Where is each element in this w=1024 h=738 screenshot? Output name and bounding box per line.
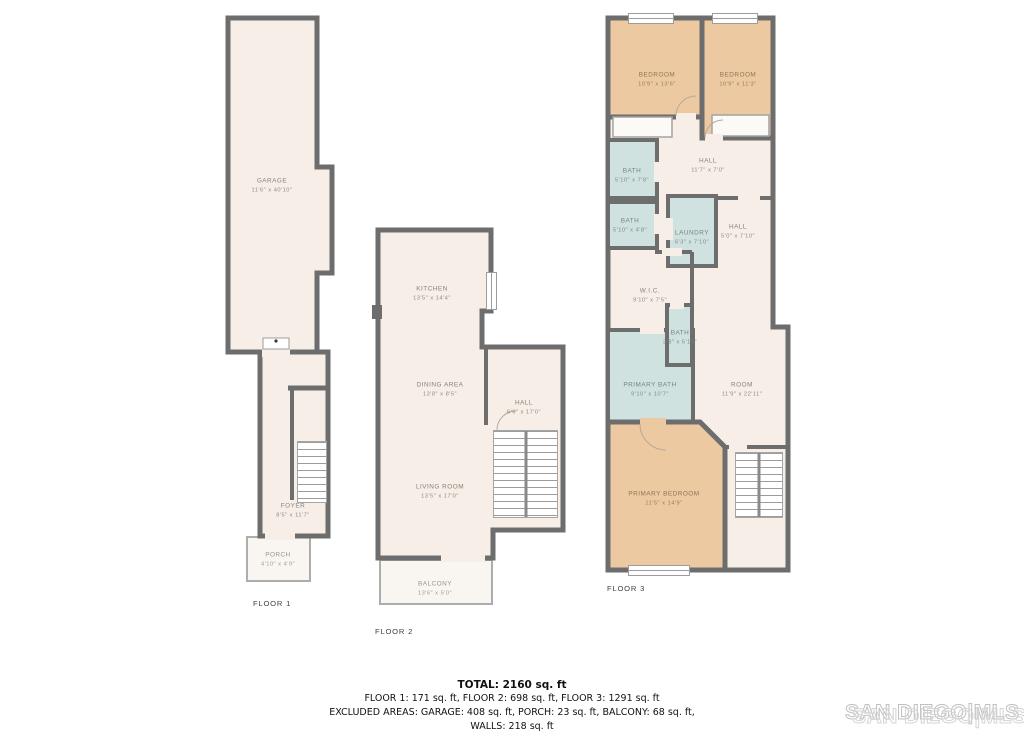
room-label-primary-bath: PRIMARY BATH 9'10" x 10'7" [623,382,676,399]
room-name: BEDROOM [719,72,756,80]
room-name: ROOM [722,382,763,390]
room-name: HALL [507,400,541,408]
room-name: PRIMARY BATH [623,382,676,390]
room-dims: 13'5" x 17'0" [416,493,464,500]
stairs-floor3 [735,452,783,518]
room-label-dining-area: DINING AREA 13'8" x 8'5" [417,382,464,399]
room-dims: 11'5" x 14'9" [628,500,699,507]
room-name: BATH [613,218,647,226]
room-dims: 11'7" x 7'0" [691,167,725,174]
room-label-hall-upper: HALL 11'7" x 7'0" [691,158,725,175]
room-label-balcony: BALCONY 13'6" x 5'0" [418,581,452,598]
floor2-plan [372,230,563,604]
door-gap [640,418,666,427]
window-icon [628,13,674,24]
door-gap [640,326,664,334]
room-dims: 13'5" x 14'4" [413,295,451,302]
stair-rail [524,431,527,517]
room-dims: 9'10" x 7'5" [633,297,667,304]
room-name: PORCH [261,552,295,560]
room-label-primary-bedroom: PRIMARY BEDROOM 11'5" x 14'9" [628,491,699,508]
room-label-hall-right: HALL 5'0" x 7'10" [721,224,755,241]
room-label-porch: PORCH 4'10" x 4'9" [261,552,295,569]
floor3-caption: FLOOR 3 [607,584,645,593]
door-dot-icon [274,339,277,342]
room-label-hall-f2: HALL 6'6" x 17'0" [507,400,541,417]
stair-rail [758,453,761,517]
room-label-bedroom-right: BEDROOM 10'9" x 11'3" [719,72,756,89]
room-label-bath-top: BATH 5'10" x 7'8" [615,168,649,185]
room-name: BATH [615,168,649,176]
room-dims: 11'9" x 22'11" [722,391,763,398]
bedroom-left-shape [608,18,702,117]
room-label-garage: GARAGE 11'6" x 40'10" [252,178,293,195]
closet-left [613,117,672,137]
door-gap [654,162,662,182]
room-dims: 13'8" x 8'5" [417,391,464,398]
room-dims: 13'6" x 5'0" [418,590,452,597]
room-name: BATH [663,330,697,338]
room-label-living-room: LIVING ROOM 13'5" x 17'0" [416,484,464,501]
room-dims: 6'6" x 17'0" [507,409,541,416]
room-dims: 8'5" x 11'7" [276,512,310,519]
window-icon [486,272,497,310]
room-label-kitchen: KITCHEN 13'5" x 14'4" [413,286,451,303]
floor2-caption: FLOOR 2 [375,627,413,636]
room-label-foyer: FOYER 8'5" x 11'7" [276,503,310,520]
room-dims: 3'8" x 5'10" [663,339,697,346]
room-name: LIVING ROOM [416,484,464,492]
room-dims: 10'9" x 11'3" [719,81,756,88]
room-name: W.I.C. [633,288,667,296]
floor1-caption: FLOOR 1 [253,599,291,608]
balcony-door-gap [441,553,485,562]
door-gap [738,194,760,202]
room-name: GARAGE [252,178,293,186]
room-dims: 4'10" x 4'9" [261,561,295,568]
mls-watermark: SAN DIEGO|MLS SAN DIEGO|MLS [845,701,1023,735]
room-dims: 11'6" x 40'10" [252,187,293,194]
door-gap [705,134,723,143]
stairs-floor1 [297,441,327,503]
room-label-room: ROOM 11'9" x 22'11" [722,382,763,399]
room-name: BALCONY [418,581,452,589]
room-name: HALL [691,158,725,166]
door-gap [654,214,662,234]
room-label-bedroom-left: BEDROOM 10'9" x 13'6" [638,72,676,89]
room-label-laundry: LAUNDRY 6'3" x 7'10" [675,230,709,247]
room-name: PRIMARY BEDROOM [628,491,699,499]
door-gap [662,248,682,256]
summary-total: TOTAL: 2160 sq. ft [0,678,1024,692]
door-gap [665,218,673,240]
room-label-bath-mid: BATH 5'10" x 4'8" [613,218,647,235]
room-dims: 5'10" x 7'8" [615,177,649,184]
room-name: DINING AREA [417,382,464,390]
room-name: KITCHEN [413,286,451,294]
floorplan-canvas [0,0,1024,660]
room-dims: 5'0" x 7'10" [721,233,755,240]
watermark-text-shadow: SAN DIEGO|MLS [852,705,1024,729]
room-name: LAUNDRY [675,230,709,238]
stairs-floor2 [493,430,558,518]
room-label-wic: W.I.C. 9'10" x 7'5" [633,288,667,305]
room-dims: 10'9" x 13'6" [638,81,676,88]
room-dims: 6'3" x 7'10" [675,239,709,246]
room-name: HALL [721,224,755,232]
door-gap [676,113,696,122]
closet-right [712,115,769,136]
door-gap [729,443,747,451]
room-dims: 9'10" x 10'7" [623,391,676,398]
floorplan-page: GARAGE 11'6" x 40'10" FOYER 8'5" x 11'7"… [0,0,1024,738]
room-dims: 5'10" x 4'8" [613,227,647,234]
room-label-bath-small: BATH 3'8" x 5'10" [663,330,697,347]
porch-door-gap [265,531,295,540]
room-name: FOYER [276,503,310,511]
room-name: BEDROOM [638,72,676,80]
wall-pillar-f2 [372,305,382,319]
window-icon [628,565,690,576]
window-icon [712,13,758,24]
door-gap [670,301,684,309]
